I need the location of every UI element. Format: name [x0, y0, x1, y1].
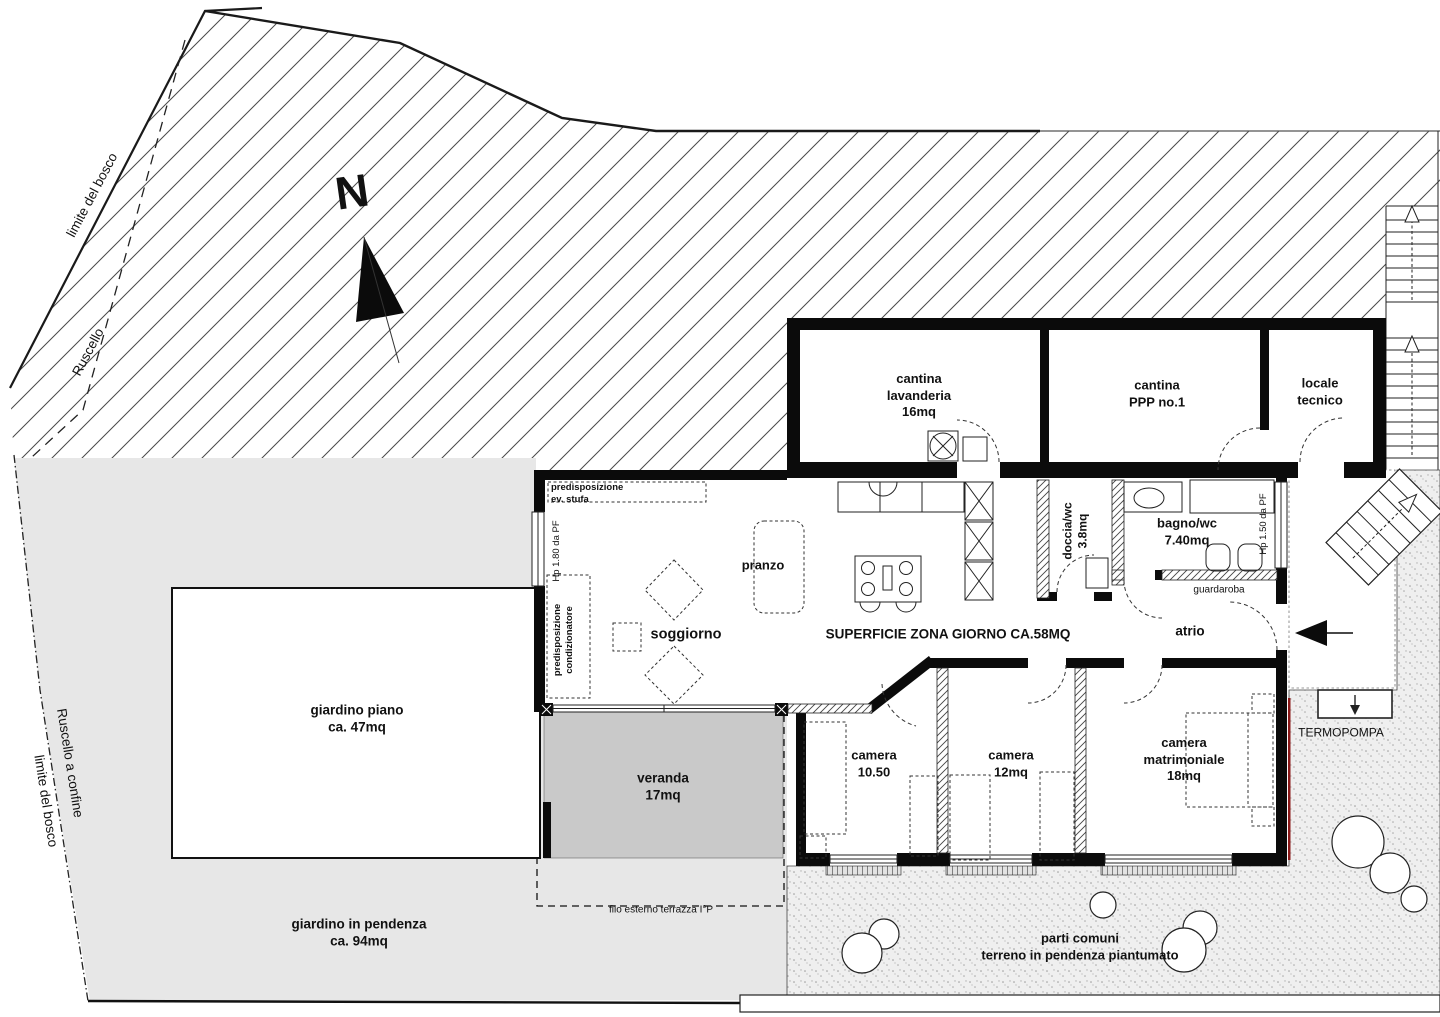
hp150-label: Hp 1.50 da PF — [1258, 493, 1270, 554]
doccia-line2: 3.8mq — [1076, 514, 1090, 549]
locale-tecnico-line2: tecnico — [1297, 392, 1343, 407]
veranda-label: veranda 17mq — [637, 770, 689, 805]
camera2-line2: 12mq — [994, 764, 1028, 779]
cantina-lavanderia-line1: cantina — [896, 371, 942, 386]
room-camera2-label: camera 12mq — [988, 747, 1034, 780]
termopompa-box — [1318, 690, 1392, 718]
hp180-label: Hp 1.80 da PF — [551, 520, 563, 581]
camera3-line3: 18mq — [1167, 768, 1201, 783]
room-doccia-label: doccia/wc 3.8mq — [1061, 502, 1092, 559]
cantina-lavanderia-line3: 16mq — [902, 404, 936, 419]
room-atrio-label: atrio — [1175, 622, 1204, 639]
plan-drawing — [0, 0, 1440, 1017]
parti-comuni-line1: parti comuni — [1041, 930, 1119, 945]
veranda-line1: veranda — [637, 771, 689, 786]
predisposizione-stufa-label: predisposizione ev. stufa — [551, 482, 623, 506]
filo-esterno-label: filo esterno terrazza I°P — [609, 905, 713, 918]
predisp-stufa-line2: ev. stufa — [551, 494, 589, 505]
floor-plan-canvas: limite del bosco Ruscello Ruscello a con… — [0, 0, 1440, 1017]
giardino-pendenza-line1: giardino in pendenza — [291, 917, 426, 932]
bagno-line2: 7.40mq — [1165, 532, 1210, 547]
superficie-label: SUPERFICIE ZONA GIORNO CA.58MQ — [826, 625, 1071, 642]
parti-comuni-line2: terreno in pendenza piantumato — [981, 947, 1178, 962]
bagno-line1: bagno/wc — [1157, 515, 1217, 530]
room-locale-tecnico-label: locale tecnico — [1297, 375, 1343, 408]
doccia-line1: doccia/wc — [1061, 502, 1075, 559]
guardaroba-label: guardaroba — [1193, 585, 1244, 598]
termopompa-label: TERMOPOMPA — [1298, 725, 1384, 740]
giardino-piano-label: giardino piano ca. 47mq — [311, 702, 404, 737]
room-cantina-ppp-label: cantina PPP no.1 — [1129, 377, 1185, 410]
cantina-ppp-line1: cantina — [1134, 377, 1180, 392]
room-soggiorno-label: soggiorno — [651, 626, 722, 645]
predisposizione-condizionatore-label: predisposizione condizionatore — [552, 604, 576, 676]
room-cantina-lavanderia-label: cantina lavanderia 16mq — [887, 371, 951, 421]
room-pranzo-label: pranzo — [742, 558, 785, 575]
accent-red-line — [1288, 698, 1291, 860]
camera1-line2: 10.50 — [858, 764, 891, 779]
parti-comuni-label: parti comuni terreno in pendenza piantum… — [981, 930, 1178, 963]
glazing-south — [553, 705, 775, 712]
giardino-pendenza-label: giardino in pendenza ca. 94mq — [291, 916, 426, 951]
camera3-line1: camera — [1161, 735, 1207, 750]
road-strip — [740, 995, 1440, 1012]
window-bagno-east — [1275, 482, 1287, 568]
veranda-line2: 17mq — [645, 788, 680, 803]
room-camera1-label: camera 10.50 — [851, 747, 897, 780]
locale-tecnico-line1: locale — [1302, 375, 1339, 390]
giardino-piano-line1: giardino piano — [311, 703, 404, 718]
camera3-line2: matrimoniale — [1144, 752, 1225, 767]
giardino-pendenza-line2: ca. 94mq — [330, 934, 388, 949]
camera2-line1: camera — [988, 747, 1034, 762]
giardino-piano-line2: ca. 47mq — [328, 720, 386, 735]
predisp-cond-line1: predisposizione — [552, 604, 563, 676]
window-soggiorno-west — [532, 512, 544, 586]
predisp-cond-line2: condizionatore — [564, 606, 575, 674]
camera1-line1: camera — [851, 747, 897, 762]
veranda-wall-stub — [543, 802, 551, 858]
predisp-stufa-line1: predisposizione — [551, 482, 623, 493]
cantina-ppp-line2: PPP no.1 — [1129, 394, 1185, 409]
room-camera3-label: camera matrimoniale 18mq — [1144, 735, 1225, 785]
room-bagno-label: bagno/wc 7.40mq — [1157, 515, 1217, 548]
cantina-lavanderia-line2: lavanderia — [887, 388, 951, 403]
